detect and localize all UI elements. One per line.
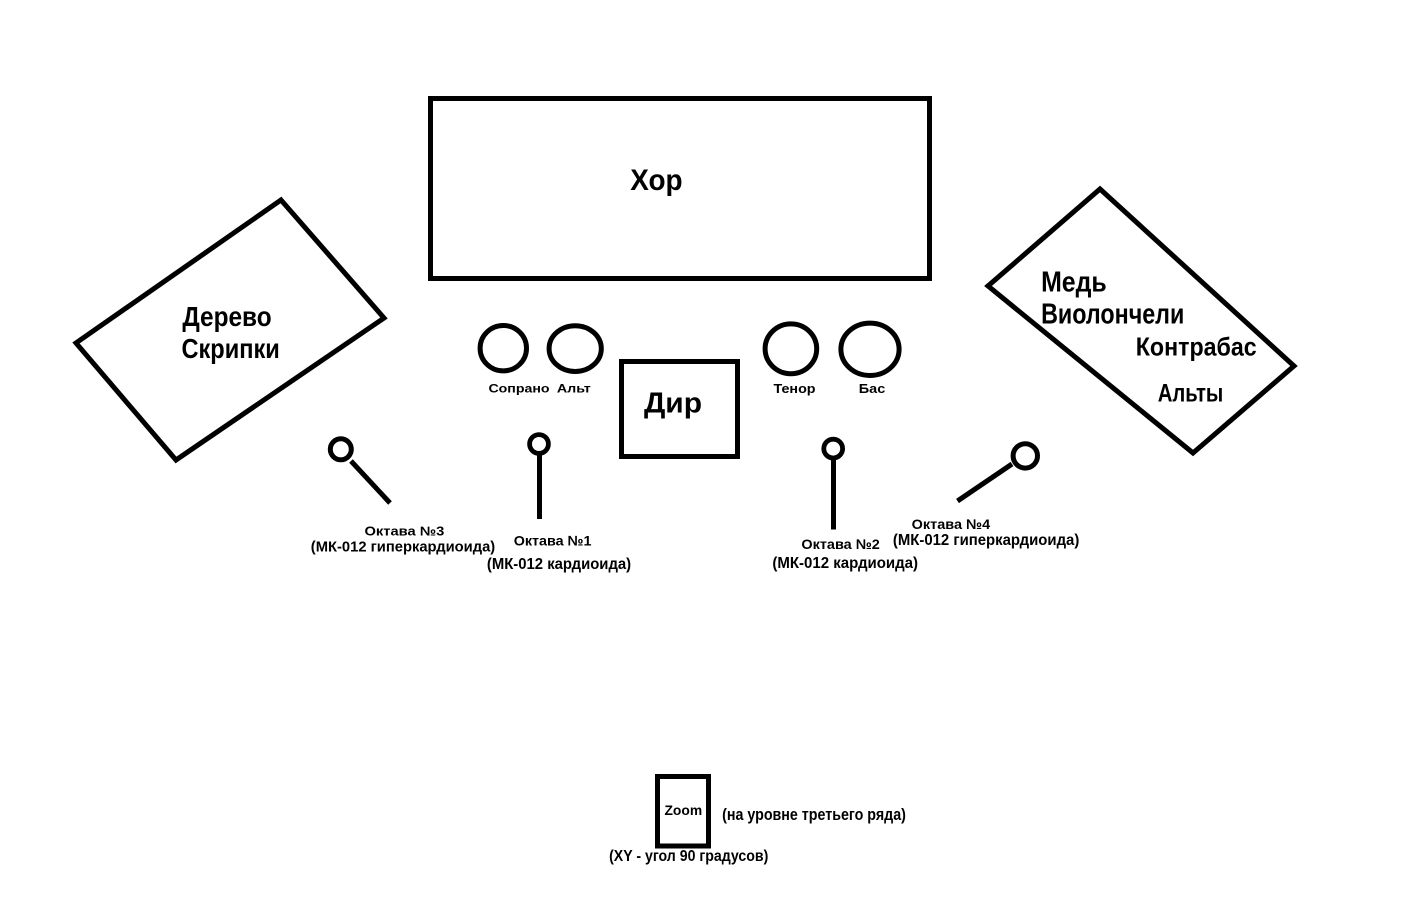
svg-text:Виолончели: Виолончели	[1041, 297, 1184, 330]
svg-text:(МК-012 гиперкардиоида): (МК-012 гиперкардиоида)	[893, 532, 1079, 549]
svg-text:Альт: Альт	[557, 381, 592, 395]
svg-text:Сопрано: Сопрано	[488, 381, 549, 395]
svg-text:(МК-012 гиперкардиоида): (МК-012 гиперкардиоида)	[311, 539, 495, 555]
svg-text:Октава №4: Октава №4	[912, 517, 991, 533]
svg-text:(XY - угол 90 градусов): (XY - угол 90 градусов)	[609, 847, 768, 865]
svg-text:Октава №3: Октава №3	[364, 523, 444, 538]
svg-text:Zoom: Zoom	[664, 802, 702, 818]
svg-text:Альты: Альты	[1158, 379, 1224, 408]
svg-text:Тенор: Тенор	[773, 382, 815, 396]
svg-text:(МК-012 кардиоида): (МК-012 кардиоида)	[487, 556, 631, 573]
svg-text:(МК-012 кардиоида): (МК-012 кардиоида)	[772, 554, 918, 572]
svg-text:(на уровне третьего ряда): (на уровне третьего ряда)	[722, 806, 906, 824]
svg-text:Дир: Дир	[644, 388, 702, 419]
svg-text:Дерево: Дерево	[182, 301, 271, 333]
svg-text:Октава №2: Октава №2	[801, 537, 880, 553]
svg-text:Медь: Медь	[1041, 266, 1107, 298]
svg-text:Хор: Хор	[630, 164, 682, 197]
svg-text:Контрабас: Контрабас	[1136, 334, 1257, 362]
svg-text:Скрипки: Скрипки	[181, 334, 279, 364]
svg-text:Бас: Бас	[859, 382, 886, 396]
svg-text:Октава №1: Октава №1	[514, 534, 592, 550]
